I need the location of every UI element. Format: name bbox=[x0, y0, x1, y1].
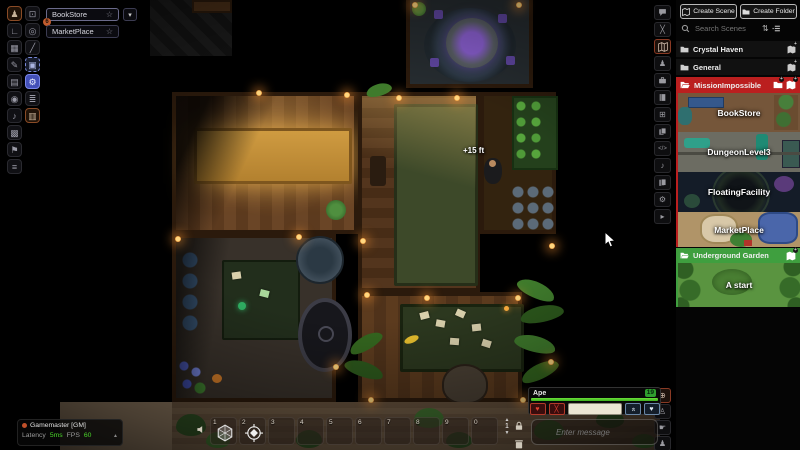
crosshair-macro-icon bbox=[245, 424, 263, 442]
bookmark-icon: ⚑ bbox=[10, 145, 18, 155]
tool-group-notes-icon[interactable]: ⚑ bbox=[7, 142, 22, 157]
trash-icon[interactable] bbox=[514, 439, 524, 449]
expand-caret-icon[interactable]: ▲ bbox=[113, 433, 118, 439]
full-heal-button[interactable]: « bbox=[625, 403, 641, 415]
chat-input-box[interactable] bbox=[531, 419, 658, 445]
chevron-down-icon: ▾ bbox=[128, 11, 132, 19]
torch-light bbox=[396, 95, 402, 101]
hotbar-slot-3[interactable]: 3 bbox=[268, 417, 295, 445]
map-chair bbox=[506, 56, 515, 65]
tab-cards[interactable] bbox=[654, 124, 671, 139]
plus-badge: + bbox=[793, 60, 798, 65]
player-color-dot bbox=[22, 423, 27, 428]
map-round-table bbox=[446, 18, 498, 68]
plus-badge: + bbox=[793, 248, 798, 253]
torch-light bbox=[344, 92, 350, 98]
tab-compendium[interactable] bbox=[654, 175, 671, 190]
hotbar-collapse-speaker-icon[interactable] bbox=[196, 424, 207, 435]
scene-tile-label: BookStore bbox=[678, 108, 800, 118]
hotbar-slot-1[interactable]: 1 bbox=[210, 417, 237, 445]
folder-label: Crystal Haven bbox=[693, 45, 743, 54]
map-plant-shelf bbox=[512, 96, 558, 170]
tab-settings[interactable]: ⚙ bbox=[654, 192, 671, 207]
map-room-middle bbox=[358, 92, 480, 292]
scenes-sidebar: Create Scene Create Folder ⇅ Crystal Hav… bbox=[676, 0, 800, 450]
map-room-topright bbox=[406, 0, 533, 88]
scene-search: ⇅ bbox=[681, 23, 797, 34]
map-bench bbox=[370, 156, 386, 186]
torch-light bbox=[175, 236, 181, 242]
tool-ruler-button[interactable]: ╱ bbox=[25, 40, 40, 55]
torch-light bbox=[256, 90, 262, 96]
scene-nav-expand-button[interactable]: ▾ bbox=[123, 8, 137, 21]
folder-icon bbox=[742, 8, 750, 16]
hotbar-slot-4[interactable]: 4 bbox=[297, 417, 324, 445]
tab-actors[interactable]: ♟ bbox=[654, 56, 671, 71]
tool-gear-button[interactable]: ⚙ bbox=[25, 74, 40, 89]
scene-tile-label: MarketPlace bbox=[678, 225, 800, 235]
page-down-icon[interactable]: ▼ bbox=[501, 430, 513, 436]
tool-group-sounds-icon[interactable]: ♪ bbox=[7, 108, 22, 123]
create-folder-button[interactable]: Create Folder bbox=[740, 4, 797, 19]
book-stack-icon bbox=[658, 178, 667, 187]
tool-bag-button[interactable]: ▣ bbox=[25, 57, 40, 72]
slot-number: 7 bbox=[387, 419, 391, 426]
folder-open-icon bbox=[680, 80, 690, 90]
tiles-icon: ▦ bbox=[10, 43, 19, 53]
map-palm-leaf bbox=[519, 302, 565, 327]
ruler-icon: ∟ bbox=[10, 26, 19, 36]
map-paper bbox=[435, 319, 445, 327]
scene-tile-floatingfacility[interactable]: FloatingFacility bbox=[676, 172, 800, 212]
token-name: Ape bbox=[533, 390, 546, 397]
elevation-label: +15 ft bbox=[463, 146, 484, 155]
map-icon bbox=[682, 8, 690, 16]
scene-nav-label: MarketPlace bbox=[52, 27, 94, 36]
map-palm-leaf bbox=[519, 356, 562, 387]
gear-icon: ⚙ bbox=[28, 77, 36, 87]
plus-badge: + bbox=[779, 77, 784, 82]
tab-scenes[interactable] bbox=[654, 39, 671, 54]
slot-number: 4 bbox=[300, 419, 304, 426]
chevron-right-icon: ▸ bbox=[660, 212, 664, 221]
slot-number: 3 bbox=[271, 419, 275, 426]
folder-missionimpossible[interactable]: MissionImpossible + + bbox=[676, 77, 800, 93]
lightbulb-icon: ◉ bbox=[11, 94, 19, 104]
tool-group-drawings-icon[interactable]: ✎ bbox=[7, 57, 22, 72]
gears-icon: ⚙ bbox=[659, 195, 666, 204]
fps-value: 60 bbox=[84, 432, 92, 439]
torch-light bbox=[548, 359, 554, 365]
user-icon: ♟ bbox=[659, 439, 666, 448]
tool-group-walls-icon[interactable]: ▤ bbox=[7, 74, 22, 89]
tab-tables[interactable]: ⊞ bbox=[654, 107, 671, 122]
scene-nav-label: BookStore bbox=[52, 10, 87, 19]
kill-button[interactable]: ╳ bbox=[549, 403, 565, 415]
chessboard-icon: ▩ bbox=[10, 128, 19, 138]
map-shadow bbox=[176, 96, 354, 230]
map-chair bbox=[434, 10, 443, 19]
map-paper bbox=[472, 324, 482, 332]
tool-layers-button[interactable]: ≣ bbox=[25, 91, 40, 106]
wall-icon: ▤ bbox=[10, 77, 19, 87]
map-window-light bbox=[362, 96, 476, 288]
chat-message-input[interactable] bbox=[532, 427, 658, 438]
tool-select-button[interactable]: ⊡ bbox=[25, 6, 40, 21]
tool-group-journal-icon[interactable]: ≡ bbox=[7, 159, 22, 174]
tab-items[interactable] bbox=[654, 73, 671, 88]
scene-tile-astart[interactable]: A start bbox=[676, 263, 800, 307]
tool-group-tiles-icon[interactable]: ▦ bbox=[7, 40, 22, 55]
tab-combat[interactable]: ╳ bbox=[654, 22, 671, 37]
scene-tile-label: FloatingFacility bbox=[678, 187, 800, 197]
scene-nav-item-bookstore[interactable]: BookStore ☆ bbox=[46, 8, 119, 21]
tile-crate bbox=[744, 240, 752, 246]
person-icon: ♟ bbox=[10, 9, 18, 19]
map-shadow bbox=[176, 238, 332, 398]
map-chair bbox=[498, 14, 507, 23]
scene-tile-bookstore[interactable]: BookStore bbox=[676, 93, 800, 132]
slot-number: 8 bbox=[416, 419, 420, 426]
map-pot-rack bbox=[510, 184, 556, 232]
latency-label: Latency bbox=[22, 432, 46, 439]
scene-tile-dungeonlevel3[interactable]: DungeonLevel3 bbox=[676, 132, 800, 172]
create-scene-button[interactable]: Create Scene bbox=[680, 4, 737, 19]
hotbar-slot-9[interactable]: 9 bbox=[442, 417, 469, 445]
plus-badge: + bbox=[793, 42, 798, 47]
torch-light bbox=[454, 95, 460, 101]
collapse-all-icon[interactable] bbox=[772, 24, 781, 33]
folder-underground-garden[interactable]: Underground Garden + bbox=[676, 248, 800, 263]
sort-icon[interactable]: ⇅ bbox=[762, 24, 769, 33]
torch-light bbox=[412, 2, 418, 8]
torch-light bbox=[296, 234, 302, 240]
crossed-swords-icon: ╳ bbox=[660, 25, 665, 34]
plus-badge: + bbox=[793, 77, 798, 82]
tab-playlists[interactable]: ♪ bbox=[654, 158, 671, 173]
music-note-icon: ♪ bbox=[661, 161, 665, 170]
film-icon: ▥ bbox=[28, 111, 37, 121]
torch-light bbox=[424, 295, 430, 301]
folder-open-icon bbox=[680, 251, 689, 260]
map-figure-head bbox=[489, 160, 496, 167]
torch-light bbox=[549, 243, 555, 249]
slot-number: 6 bbox=[358, 419, 362, 426]
heart-minus-icon: ♥ bbox=[535, 406, 539, 413]
map-room-bottomleft bbox=[172, 234, 336, 402]
folder-label: MissionImpossible bbox=[694, 81, 761, 90]
target-icon: ◎ bbox=[29, 26, 37, 36]
suitcase-icon bbox=[658, 76, 667, 85]
torch-light bbox=[368, 397, 374, 403]
latency-value: 5ms bbox=[50, 432, 63, 439]
hotbar-slot-7[interactable]: 7 bbox=[384, 417, 411, 445]
scene-tile-marketplace[interactable]: MarketPlace bbox=[676, 212, 800, 247]
list-icon: ≡ bbox=[12, 162, 17, 172]
folder-label: General bbox=[693, 63, 721, 72]
tab-chat[interactable] bbox=[654, 5, 671, 20]
music-icon: ♪ bbox=[12, 111, 17, 121]
hotbar-slot-6[interactable]: 6 bbox=[355, 417, 382, 445]
folder-icon bbox=[680, 63, 689, 72]
tab-journal[interactable] bbox=[654, 90, 671, 105]
double-chevron-up-icon: « bbox=[627, 408, 638, 412]
player-name: Gamemaster [GM] bbox=[30, 422, 86, 429]
heart-icon: ♥ bbox=[649, 406, 653, 413]
tool-target-button[interactable]: ◎ bbox=[25, 23, 40, 38]
code-icon: </> bbox=[658, 146, 667, 152]
star-icon[interactable]: ☆ bbox=[106, 27, 113, 36]
table-grid-icon: ⊞ bbox=[659, 110, 666, 119]
actor-icon: ♟ bbox=[659, 59, 666, 68]
hotbar-slot-2[interactable]: 2 bbox=[239, 417, 266, 445]
hp-bar-track bbox=[531, 398, 658, 401]
chat-bubble-icon bbox=[658, 8, 667, 17]
map-room-left bbox=[172, 92, 358, 234]
hotbar-page-controls: ▲ 1 ▼ bbox=[501, 417, 513, 445]
layers-icon: ≣ bbox=[29, 94, 37, 104]
scene-nav-item-marketplace[interactable]: MarketPlace ☆ bbox=[46, 25, 119, 38]
hotbar-side-controls bbox=[514, 418, 528, 446]
token-hp-badge: 19 bbox=[645, 389, 656, 397]
create-scene-label: Create Scene bbox=[693, 8, 735, 15]
folder-general[interactable]: General + bbox=[676, 59, 800, 75]
damage-button[interactable]: ♥ bbox=[530, 403, 546, 415]
torch-light bbox=[520, 397, 526, 403]
torch-light bbox=[360, 238, 366, 244]
star-icon[interactable]: ☆ bbox=[106, 10, 113, 19]
foundry-vtt-app: +15 ft ♟ ∟ ▦ ✎ ▤ ◉ ♪ ▩ ⚑ ≡ ⊡ ◎ ╱ ▣ ⚙ ≣ ▥… bbox=[0, 0, 800, 450]
tool-video-button[interactable]: ▥ bbox=[25, 108, 40, 123]
hand-icon: ☛ bbox=[659, 423, 666, 432]
heal-button[interactable]: ♥ bbox=[644, 403, 660, 415]
hotbar-slot-8[interactable]: 8 bbox=[413, 417, 440, 445]
folder-label: Underground Garden bbox=[693, 251, 769, 260]
lock-icon[interactable] bbox=[514, 421, 524, 431]
player-status-panel[interactable]: Gamemaster [GM] Latency 5ms FPS 60 ▲ bbox=[17, 419, 123, 446]
scene-tile-label: A start bbox=[678, 280, 800, 290]
map-room-right bbox=[480, 92, 556, 234]
cards-icon bbox=[658, 127, 667, 136]
map-candle bbox=[504, 306, 509, 311]
tool-group-measure-icon[interactable]: ∟ bbox=[7, 23, 22, 38]
tool-group-regions-icon[interactable]: ▩ bbox=[7, 125, 22, 140]
torch-light bbox=[364, 292, 370, 298]
page-number: 1 bbox=[501, 423, 513, 430]
measure-icon: ╱ bbox=[30, 43, 35, 53]
scene-tile-label: DungeonLevel3 bbox=[678, 147, 800, 157]
search-icon bbox=[681, 24, 690, 33]
map-paper bbox=[450, 338, 459, 346]
torch-light bbox=[515, 295, 521, 301]
hotbar-slot-5[interactable]: 5 bbox=[326, 417, 353, 445]
map-door-top bbox=[192, 0, 232, 13]
book-icon bbox=[658, 93, 667, 102]
map-chair-large bbox=[442, 364, 488, 404]
create-folder-label: Create Folder bbox=[753, 8, 795, 15]
d20-macro-icon bbox=[216, 424, 234, 442]
bag-icon: ▣ bbox=[28, 60, 37, 70]
torch-light bbox=[516, 2, 522, 8]
hotbar-slot-10[interactable]: 0 bbox=[471, 417, 498, 445]
pencil-icon: ✎ bbox=[11, 60, 19, 70]
slot-number: 0 bbox=[474, 419, 478, 426]
token-health-hud: Ape 19 ♥ ╳ « ♥ bbox=[528, 387, 661, 415]
tool-group-tokens-icon[interactable]: ♟ bbox=[7, 6, 22, 21]
folder-icon bbox=[680, 45, 689, 54]
tile-banner bbox=[688, 97, 724, 108]
hp-bar-fill bbox=[531, 398, 658, 401]
map-icon bbox=[658, 42, 668, 52]
tool-group-lighting-icon[interactable]: ◉ bbox=[7, 91, 22, 106]
map-room-bottommiddle bbox=[358, 292, 522, 402]
torch-light bbox=[333, 364, 339, 370]
map-chair bbox=[430, 58, 439, 67]
tab-macros[interactable]: </> bbox=[654, 141, 671, 156]
folder-crystal-haven[interactable]: Crystal Haven + bbox=[676, 41, 800, 57]
fps-label: FPS bbox=[67, 432, 80, 439]
slot-number: 9 bbox=[445, 419, 449, 426]
slot-number: 5 bbox=[329, 419, 333, 426]
hp-amount-input[interactable] bbox=[568, 403, 622, 415]
search-input[interactable] bbox=[693, 23, 759, 34]
cross-icon: ╳ bbox=[554, 406, 558, 413]
mouse-cursor bbox=[604, 231, 618, 249]
sidebar-collapse-button[interactable]: ▸ bbox=[654, 209, 671, 224]
select-expand-icon: ⊡ bbox=[29, 9, 37, 19]
